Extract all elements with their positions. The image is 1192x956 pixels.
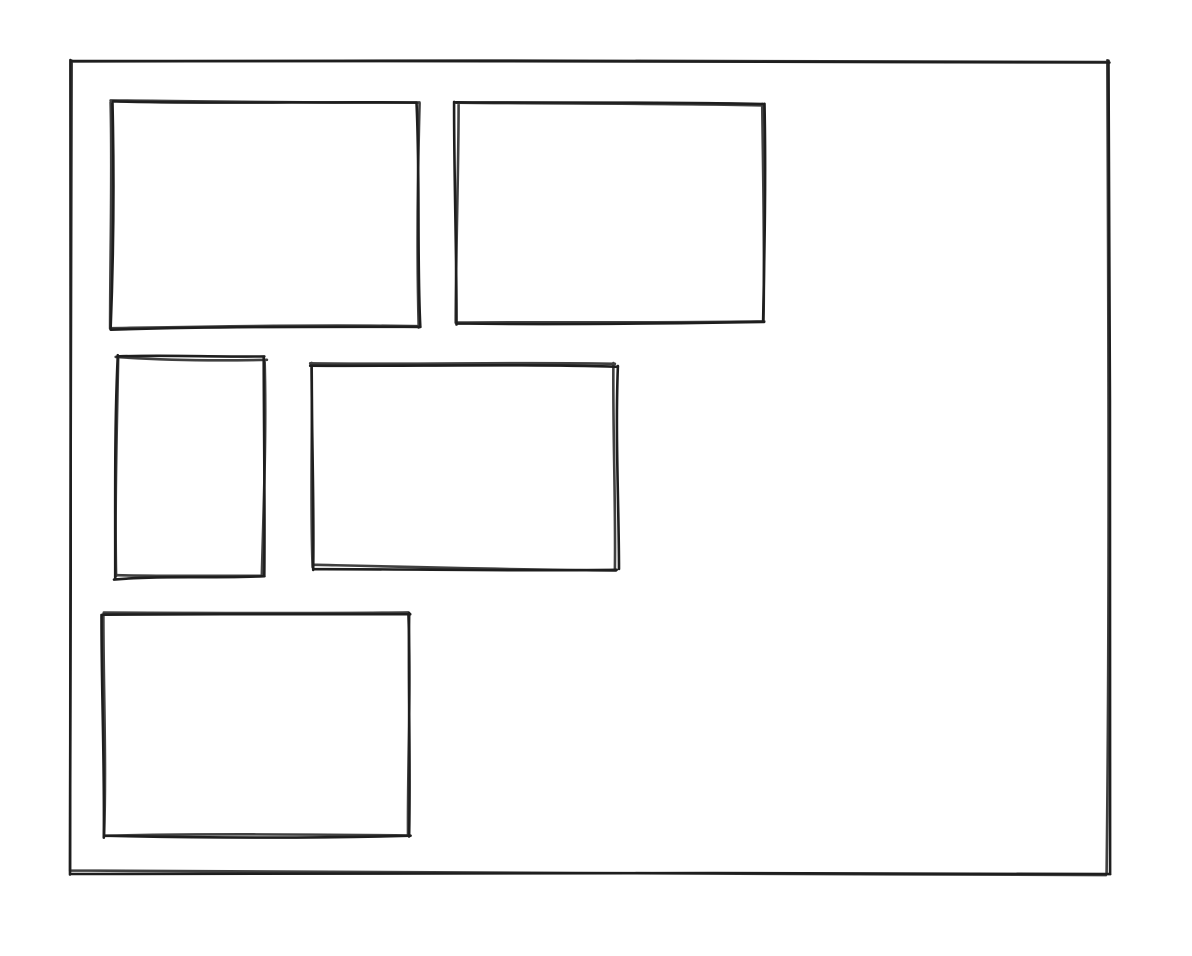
top-right-rect-stroke: [456, 103, 765, 323]
whiteboard-canvas[interactable]: [0, 0, 1192, 956]
middle-right-rect[interactable]: [310, 363, 619, 571]
middle-right-rect-stroke: [310, 365, 619, 570]
outer-frame-rect-stroke: [70, 60, 1110, 875]
sketch-layer: [0, 0, 1192, 956]
bottom-left-rect[interactable]: [101, 612, 410, 837]
outer-frame-rect[interactable]: [70, 60, 1110, 875]
middle-left-rect-stroke: [116, 357, 267, 576]
middle-left-rect-stroke: [114, 355, 265, 579]
middle-right-rect-stroke: [310, 363, 616, 571]
top-right-rect-stroke: [454, 102, 765, 325]
top-left-rect-stroke: [111, 101, 421, 329]
top-right-rect[interactable]: [454, 102, 765, 325]
bottom-left-rect-stroke: [103, 612, 410, 836]
top-left-rect-stroke: [110, 100, 420, 328]
middle-left-rect[interactable]: [114, 355, 267, 579]
outer-frame-rect-stroke: [70, 60, 1109, 875]
top-left-rect[interactable]: [110, 100, 420, 329]
bottom-left-rect-stroke: [101, 613, 410, 838]
